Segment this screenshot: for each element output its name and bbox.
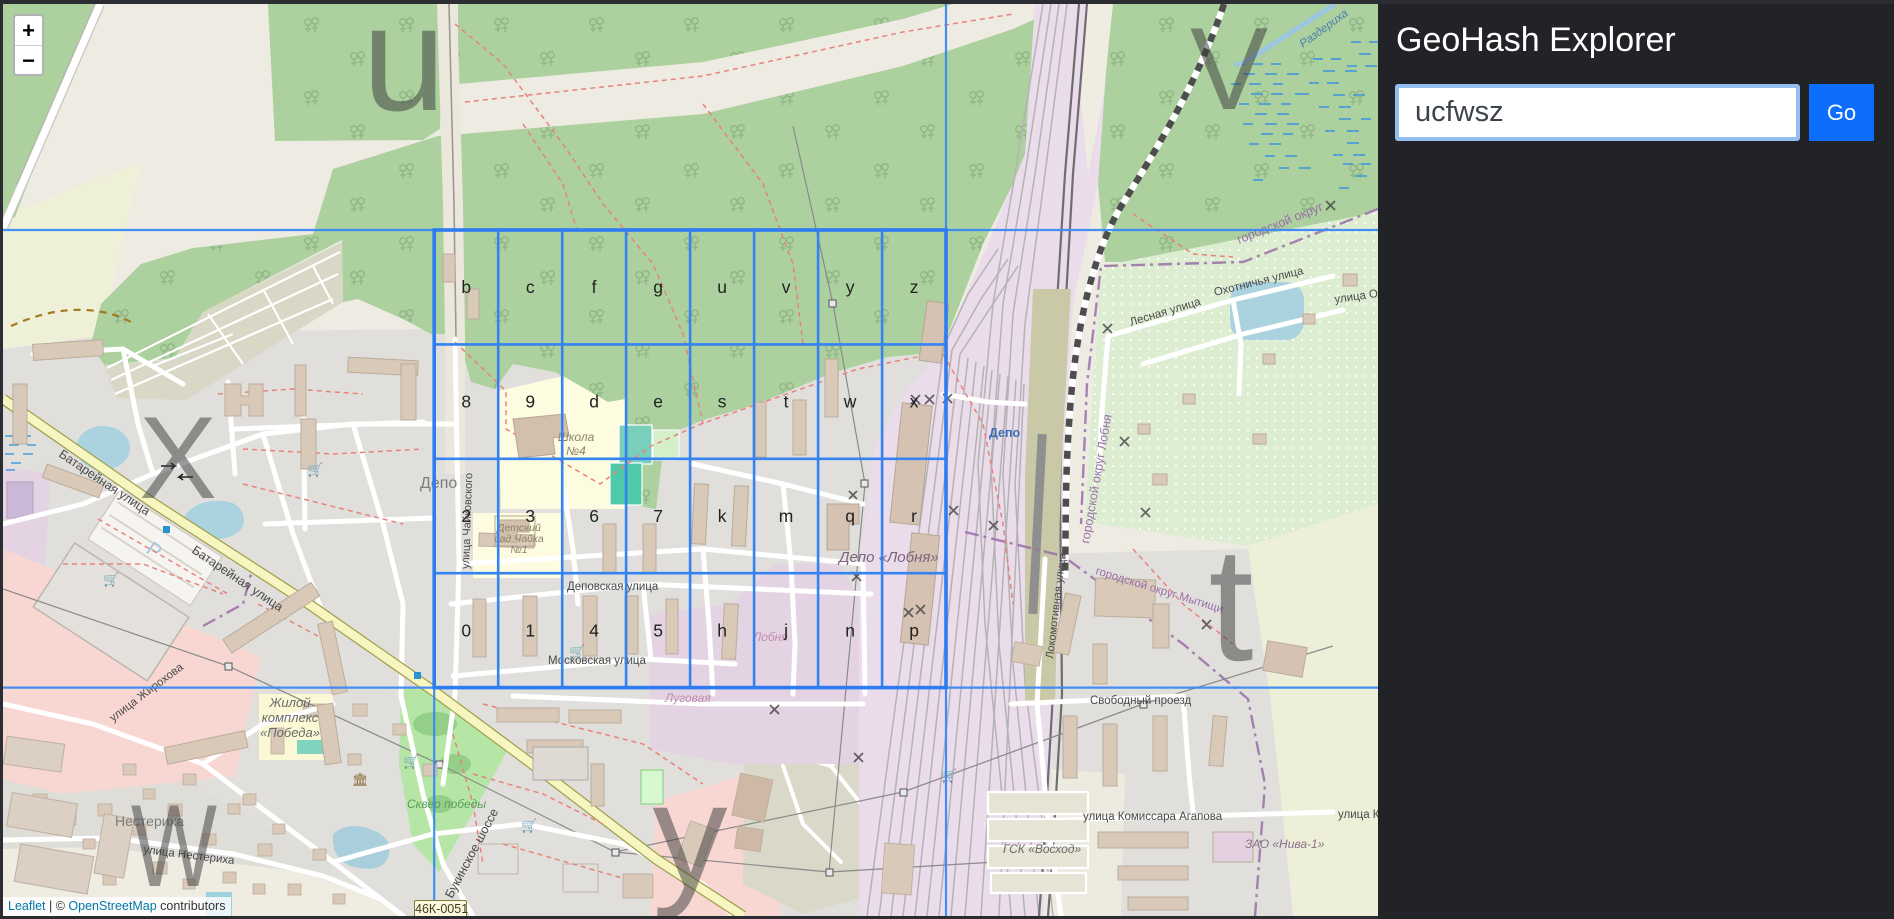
svg-text:w: w xyxy=(843,392,857,412)
svg-text:улица Ко: улица Ко xyxy=(1338,809,1378,821)
svg-text:u: u xyxy=(362,4,445,142)
svg-text:🛒: 🛒 xyxy=(521,818,537,833)
svg-text:🏛: 🏛 xyxy=(352,772,369,787)
svg-text:🛒: 🛒 xyxy=(941,768,957,783)
svg-text:7: 7 xyxy=(653,506,663,526)
svg-text:X: X xyxy=(139,392,217,523)
svg-text:Депо: Депо xyxy=(989,426,1021,440)
svg-text:ГСК «Восход»: ГСК «Восход» xyxy=(1003,842,1081,856)
svg-text:3: 3 xyxy=(525,506,535,526)
svg-text:g: g xyxy=(653,277,663,297)
svg-text:r: r xyxy=(911,506,917,526)
svg-text:Свободный проезд: Свободный проезд xyxy=(1090,695,1192,707)
svg-text:u: u xyxy=(717,277,727,297)
svg-text:ЗАО «Нива-1»: ЗАО «Нива-1» xyxy=(1245,837,1325,851)
svg-text:0: 0 xyxy=(461,620,471,640)
svg-text:Деповская улица: Деповская улица xyxy=(567,581,659,593)
svg-text:Депо «Лобня»: Депо «Лобня» xyxy=(837,549,939,566)
svg-text:6: 6 xyxy=(589,506,599,526)
svg-text:d: d xyxy=(589,392,599,412)
svg-text:c: c xyxy=(526,277,535,297)
svg-text:z: z xyxy=(910,277,919,297)
svg-text:4: 4 xyxy=(589,620,599,640)
svg-text:№1: №1 xyxy=(510,544,527,556)
svg-text:W: W xyxy=(131,781,217,911)
svg-text:x: x xyxy=(910,392,919,412)
svg-text:1: 1 xyxy=(525,620,535,640)
svg-text:V: V xyxy=(1190,4,1268,134)
svg-text:f: f xyxy=(592,277,597,297)
svg-text:9: 9 xyxy=(525,392,535,412)
svg-text:h: h xyxy=(717,620,727,640)
svg-text:y: y xyxy=(846,277,855,297)
svg-text:v: v xyxy=(782,277,791,297)
svg-text:🛒: 🛒 xyxy=(569,644,585,659)
svg-text:8: 8 xyxy=(461,392,471,412)
svg-text:Депо: Депо xyxy=(420,475,457,492)
svg-text:t: t xyxy=(1208,514,1253,695)
svg-text:🛒: 🛒 xyxy=(307,462,323,477)
svg-text:n: n xyxy=(845,620,855,640)
svg-text:y: y xyxy=(653,751,728,916)
svg-text:q: q xyxy=(845,506,855,526)
svg-text:b: b xyxy=(461,277,471,297)
svg-text:комплекс: комплекс xyxy=(262,710,319,725)
svg-text:j: j xyxy=(783,620,788,640)
svg-text:5: 5 xyxy=(653,620,663,640)
svg-text:№4: №4 xyxy=(566,444,586,458)
svg-text:e: e xyxy=(653,392,663,412)
svg-text:🛒: 🛒 xyxy=(103,572,119,587)
svg-text:«Победа»: «Победа» xyxy=(260,725,320,740)
svg-text:t: t xyxy=(784,392,789,412)
svg-text:s: s xyxy=(718,392,727,412)
svg-text:Луговая: Луговая xyxy=(664,691,711,705)
svg-text:улица Комиссара Агапова: улица Комиссара Агапова xyxy=(1083,811,1223,823)
svg-text:Лобня: Лобня xyxy=(752,630,788,644)
svg-text:p: p xyxy=(909,620,919,640)
svg-text:Жилой: Жилой xyxy=(269,695,311,710)
svg-text:k: k xyxy=(718,506,727,526)
svg-text:m: m xyxy=(779,506,794,526)
svg-text:🛒: 🛒 xyxy=(403,754,419,769)
svg-text:Сквер победы: Сквер победы xyxy=(407,797,486,811)
svg-text:2: 2 xyxy=(461,506,471,526)
